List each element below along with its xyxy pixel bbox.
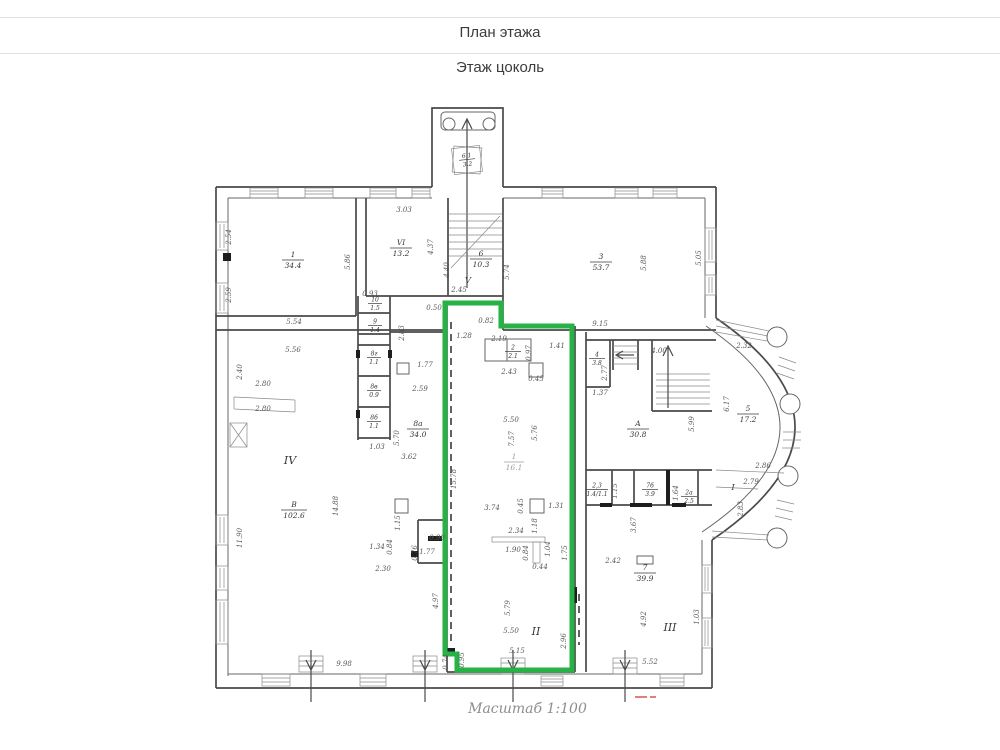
dim-label: 5.79 [504,600,512,616]
svg-text:2,3: 2,3 [591,483,602,490]
svg-text:VI: VI [397,238,406,247]
dim-label: 0.90 [429,534,445,542]
room-stamp: 6.13.2 [458,152,476,169]
svg-text:А: А [634,419,641,428]
svg-text:2а: 2а [684,490,693,497]
room-stamps: 6.13.2 134.4 VI13.2 610.3 353.7 22.1 43.… [281,152,759,583]
dim-label: 4.97 [432,593,440,610]
dim-label: 11.90 [236,527,244,548]
zone-label: IV [283,454,297,467]
svg-text:3.9: 3.9 [645,491,655,498]
svg-text:4: 4 [594,352,599,359]
svg-text:3.8: 3.8 [592,360,602,367]
dim-label: 1.15 [611,483,619,499]
svg-text:0.9: 0.9 [369,392,379,399]
dim-label: 0.50 [426,304,442,312]
dim-label: 9.98 [336,660,352,668]
dim-label: 5.50 [503,416,519,424]
dim-label: 3.74 [484,504,500,512]
entry-arrow-top [462,119,472,288]
dim-label: 1.28 [456,332,472,340]
dim-label: 5.05 [695,250,703,266]
svg-text:8б: 8б [370,415,378,422]
svg-text:1: 1 [291,250,296,259]
dim-label: 0.97 [525,345,533,361]
dim-label: 5.86 [344,254,352,270]
dim-label: 4.92 [640,611,648,628]
dim-label: 2.32 [735,342,752,350]
dim-label: 2.59 [225,287,233,304]
floor-plan-drawing: 3.03 4.37 4.40 5.74 2.45 5.86 2.54 2.59 … [0,0,1000,750]
dim-label: 2.86 [754,462,771,470]
room-stamp: 8а34.0 [407,419,429,439]
svg-text:В: В [290,500,297,509]
dim-label: 2.45 [450,286,467,294]
room-stamp: 8г1.1 [367,351,381,367]
dim-label: 2.42 [604,557,621,565]
svg-text:6: 6 [479,249,484,258]
room-stamp: 739.9 [634,563,656,583]
svg-text:7: 7 [643,563,648,572]
svg-text:13.2: 13.2 [393,249,410,258]
svg-text:1.1: 1.1 [369,423,379,430]
dim-label: 4.00 [650,347,667,355]
dim-label: 1.90 [505,546,521,554]
room-stamp: 116.1 [504,452,524,472]
dim-label: 1.77 [417,361,433,369]
dim-label: 2.43 [500,368,517,376]
dim-label: 0.45 [517,498,525,514]
dim-label: 3.62 [401,453,417,461]
svg-text:6.1: 6.1 [462,152,472,160]
dim-label: 1.15 [394,515,402,531]
dim-label: 0.82 [478,317,494,325]
dim-label: 2.40 [236,364,244,381]
zone-label: II [531,625,541,638]
dim-label: 2.19 [490,335,507,343]
dim-label: 15.78 [450,468,458,489]
room-stamp: 101.5 [368,297,382,313]
dim-label: 1.37 [592,389,608,397]
dim-label: 1.03 [369,443,385,451]
svg-text:1.1: 1.1 [369,359,379,366]
dim-label: 0.76 [411,545,419,561]
svg-text:8а: 8а [413,419,422,428]
room-stamp: 8в0.9 [367,384,381,400]
dim-label: 2.79 [742,478,759,486]
dim-label: 5.56 [285,346,301,354]
room-stamp: А30.8 [627,419,649,439]
zone-label: V [465,276,472,286]
dim-label: 0.44 [532,563,548,571]
svg-text:2: 2 [510,345,515,352]
svg-text:3: 3 [599,252,604,261]
staircase-right [613,346,710,408]
svg-text:7б: 7б [646,483,654,490]
dim-label: 0.45 [528,375,544,383]
dim-label: 2.83 [737,501,745,518]
svg-text:2.1: 2.1 [507,353,518,360]
dim-label: 5.70 [393,430,401,446]
dim-label: 1.77 [419,548,435,556]
entrance-porch [432,108,503,288]
svg-text:16.1: 16.1 [506,463,523,472]
room-stamp: 517.2 [737,404,759,424]
dim-labels: 3.03 4.37 4.40 5.74 2.45 5.86 2.54 2.59 … [225,206,771,670]
dim-label: 2.30 [374,565,391,573]
dim-label: 2.77 [601,365,609,382]
dim-label: 1.75 [561,545,569,561]
stair-arrow-up [663,346,673,408]
zone-label: I [730,483,735,493]
svg-text:34.0: 34.0 [410,430,427,439]
dim-label: 5.54 [286,318,302,326]
dim-label: 5.15 [509,647,525,655]
dim-label: 0.84 [386,539,394,555]
dim-label: 9.15 [592,320,608,328]
dim-label: 2.80 [254,380,271,388]
dim-label: 6.17 [723,396,731,412]
svg-text:39.9: 39.9 [637,574,654,583]
dim-label: 1.18 [531,518,539,534]
dim-label: 5.50 [503,627,519,635]
room-stamp: 610.3 [470,249,492,269]
zone-label: III [662,621,677,634]
dim-label: 1.34 [369,543,385,551]
room-stamp: 353.7 [590,252,612,272]
room-stamp: 134.4 [282,250,304,270]
fixtures [223,253,686,653]
room-stamp: 2,31.4/1.1 [586,483,608,499]
dim-label: 1.31 [548,502,564,510]
svg-text:9: 9 [373,319,377,326]
room-stamp: 91.4 [368,319,382,335]
dim-label: 2.83 [398,325,406,342]
svg-text:1.5: 1.5 [370,305,380,312]
svg-text:1.4/1.1: 1.4/1.1 [586,491,607,498]
svg-text:34.4: 34.4 [285,261,302,270]
dim-label: 1.03 [693,609,701,625]
room-stamp: 8б1.1 [367,415,381,431]
dim-label: 2.54 [225,229,233,246]
dim-label: 5.99 [688,416,696,432]
scale-caption: Масштаб 1:100 [55,701,1000,717]
svg-text:10.3: 10.3 [473,260,490,269]
room-stamp: В102.6 [281,500,307,520]
dim-label: 4.40 [443,262,451,279]
dim-label: 0.84 [522,545,530,561]
room-stamp: VI13.2 [390,238,412,258]
svg-text:5: 5 [746,404,751,413]
room-stamp: 7б3.9 [642,483,658,499]
dim-label: 3.03 [396,206,412,214]
dim-label: 2.96 [560,633,568,650]
dim-label: 2.59 [411,385,428,393]
svg-text:8в: 8в [370,384,378,391]
dim-label: 7.57 [508,431,516,447]
dim-label: 2.80 [254,405,271,413]
svg-text:8г: 8г [371,351,378,358]
dim-label: 5.74 [503,264,511,280]
dim-label: 3.67 [630,517,638,533]
dim-label: 1.04 [544,541,552,557]
dim-label: 4.37 [427,239,435,256]
room-stamp: 43.8 [589,352,605,368]
svg-text:1.4: 1.4 [370,327,380,334]
dim-label: 14.88 [332,495,340,516]
dim-label: 0.95 [458,652,466,668]
dim-label: 0.74 [442,654,450,670]
dim-label: 5.88 [640,255,648,271]
dim-label: 1.64 [672,485,680,501]
svg-text:17.2: 17.2 [740,415,757,424]
room-stamp: 2а2.5 [681,490,697,506]
svg-text:30.8: 30.8 [630,430,647,439]
svg-text:53.7: 53.7 [593,263,610,272]
svg-text:3.2: 3.2 [462,160,472,168]
entrance-arrows [306,650,630,702]
svg-text:1: 1 [512,452,517,461]
svg-text:2.5: 2.5 [683,498,694,505]
bay-window [702,318,801,548]
dim-label: 5.76 [531,425,539,441]
dim-label: 2.34 [507,527,524,535]
dim-label: 5.52 [642,658,658,666]
svg-text:10: 10 [371,297,379,304]
svg-text:102.6: 102.6 [283,511,305,520]
dim-label: 1.41 [549,342,565,350]
